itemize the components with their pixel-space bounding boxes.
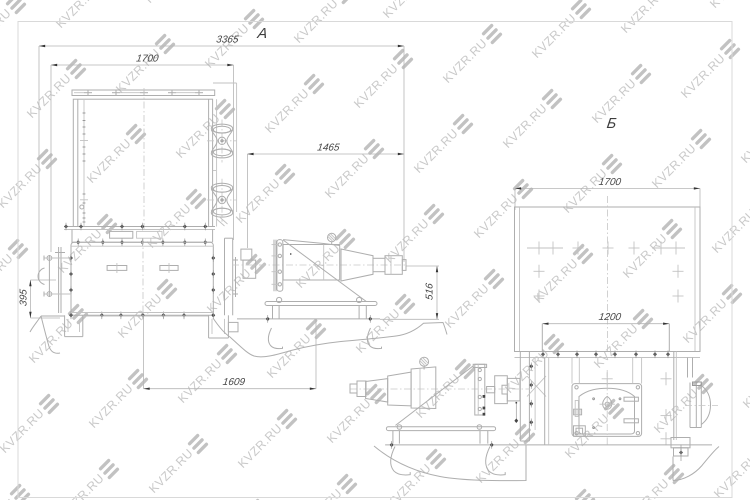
svg-text:1609: 1609 — [222, 377, 246, 388]
svg-text:KVZR.RU: KVZR.RU — [471, 191, 521, 241]
svg-text:KVZR.RU: KVZR.RU — [57, 471, 107, 500]
svg-text:KVZR.RU: KVZR.RU — [55, 226, 105, 276]
svg-text:KVZR.RU: KVZR.RU — [324, 396, 374, 446]
svg-text:KVZR.RU: KVZR.RU — [175, 356, 225, 406]
svg-text:KVZR.RU: KVZR.RU — [618, 0, 668, 36]
svg-text:KVZR.RU: KVZR.RU — [0, 6, 14, 56]
svg-text:KVZR.RU: KVZR.RU — [24, 71, 74, 121]
svg-text:KVZR.RU: KVZR.RU — [413, 371, 463, 421]
svg-text:KVZR.RU: KVZR.RU — [680, 296, 730, 346]
svg-text:KVZR.RU: KVZR.RU — [738, 116, 750, 166]
svg-text:1465: 1465 — [316, 143, 340, 154]
svg-text:KVZR.RU: KVZR.RU — [380, 0, 430, 21]
svg-text:1700: 1700 — [135, 54, 159, 65]
svg-text:KVZR.RU: KVZR.RU — [142, 0, 192, 6]
svg-text:KVZR.RU: KVZR.RU — [235, 421, 285, 471]
svg-text:KVZR.RU: KVZR.RU — [473, 436, 523, 486]
svg-text:KVZR.RU: KVZR.RU — [411, 126, 461, 176]
svg-text:KVZR.RU: KVZR.RU — [84, 136, 134, 186]
svg-text:KVZR.RU: KVZR.RU — [204, 266, 254, 316]
svg-text:KVZR.RU: KVZR.RU — [707, 0, 750, 11]
svg-text:KVZR.RU: KVZR.RU — [442, 281, 492, 331]
svg-text:KVZR.RU: KVZR.RU — [53, 0, 103, 31]
svg-text:Б: Б — [606, 116, 618, 132]
svg-text:KVZR.RU: KVZR.RU — [86, 381, 136, 431]
svg-text:KVZR.RU: KVZR.RU — [500, 101, 550, 151]
svg-text:KVZR.RU: KVZR.RU — [0, 161, 45, 211]
svg-text:KVZR.RU: KVZR.RU — [146, 446, 196, 496]
svg-text:KVZR.RU: KVZR.RU — [262, 86, 312, 136]
svg-text:KVZR.RU: KVZR.RU — [649, 141, 699, 191]
svg-text:KVZR.RU: KVZR.RU — [591, 321, 641, 371]
svg-text:А: А — [256, 26, 269, 42]
svg-text:KVZR.RU: KVZR.RU — [711, 451, 750, 500]
svg-text:KVZR.RU: KVZR.RU — [382, 216, 432, 266]
svg-text:KVZR.RU: KVZR.RU — [351, 61, 401, 111]
svg-text:1200: 1200 — [598, 312, 622, 323]
svg-text:KVZR.RU: KVZR.RU — [709, 206, 750, 256]
svg-text:KVZR.RU: KVZR.RU — [622, 476, 672, 500]
svg-text:395: 395 — [19, 288, 30, 307]
svg-text:KVZR.RU: KVZR.RU — [529, 11, 579, 61]
svg-text:KVZR.RU: KVZR.RU — [620, 231, 670, 281]
svg-text:KVZR.RU: KVZR.RU — [440, 36, 490, 86]
svg-text:KVZR.RU: KVZR.RU — [233, 176, 283, 226]
svg-text:KVZR.RU: KVZR.RU — [291, 0, 341, 46]
svg-text:KVZR.RU: KVZR.RU — [678, 51, 728, 101]
svg-text:1700: 1700 — [598, 177, 622, 188]
svg-text:KVZR.RU: KVZR.RU — [0, 251, 16, 301]
svg-text:KVZR.RU: KVZR.RU — [560, 166, 610, 216]
svg-text:KVZR.RU: KVZR.RU — [740, 361, 750, 411]
svg-text:KVZR.RU: KVZR.RU — [0, 406, 47, 456]
svg-text:516: 516 — [425, 282, 436, 301]
svg-text:KVZR.RU: KVZR.RU — [322, 151, 372, 201]
svg-text:3365: 3365 — [215, 35, 239, 46]
